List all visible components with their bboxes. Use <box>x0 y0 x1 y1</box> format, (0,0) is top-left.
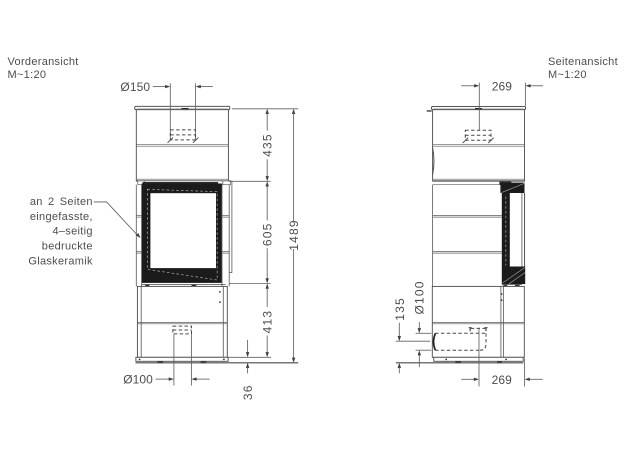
svg-text:269: 269 <box>492 373 513 387</box>
svg-text:Ø100: Ø100 <box>413 280 427 314</box>
svg-text:Seitenansicht: Seitenansicht <box>548 56 618 68</box>
svg-text:413: 413 <box>260 310 274 334</box>
svg-text:4–seitig: 4–seitig <box>52 226 92 238</box>
svg-text:Glaskeramik: Glaskeramik <box>28 255 93 267</box>
svg-text:Ø150: Ø150 <box>120 80 150 94</box>
svg-text:1489: 1489 <box>287 219 301 251</box>
svg-text:135: 135 <box>393 297 407 321</box>
svg-text:M~1:20: M~1:20 <box>8 69 47 81</box>
svg-text:269: 269 <box>492 80 513 94</box>
svg-text:an 2 Seiten: an 2 Seiten <box>30 196 93 208</box>
svg-text:eingefasste,: eingefasste, <box>30 211 93 223</box>
svg-text:bedruckte: bedruckte <box>42 241 93 253</box>
svg-text:M~1:20: M~1:20 <box>548 69 587 81</box>
svg-text:Vorderansicht: Vorderansicht <box>8 56 79 68</box>
svg-text:605: 605 <box>260 222 274 246</box>
svg-text:36: 36 <box>241 384 255 400</box>
svg-text:435: 435 <box>261 133 275 157</box>
svg-text:Ø100: Ø100 <box>123 373 153 387</box>
